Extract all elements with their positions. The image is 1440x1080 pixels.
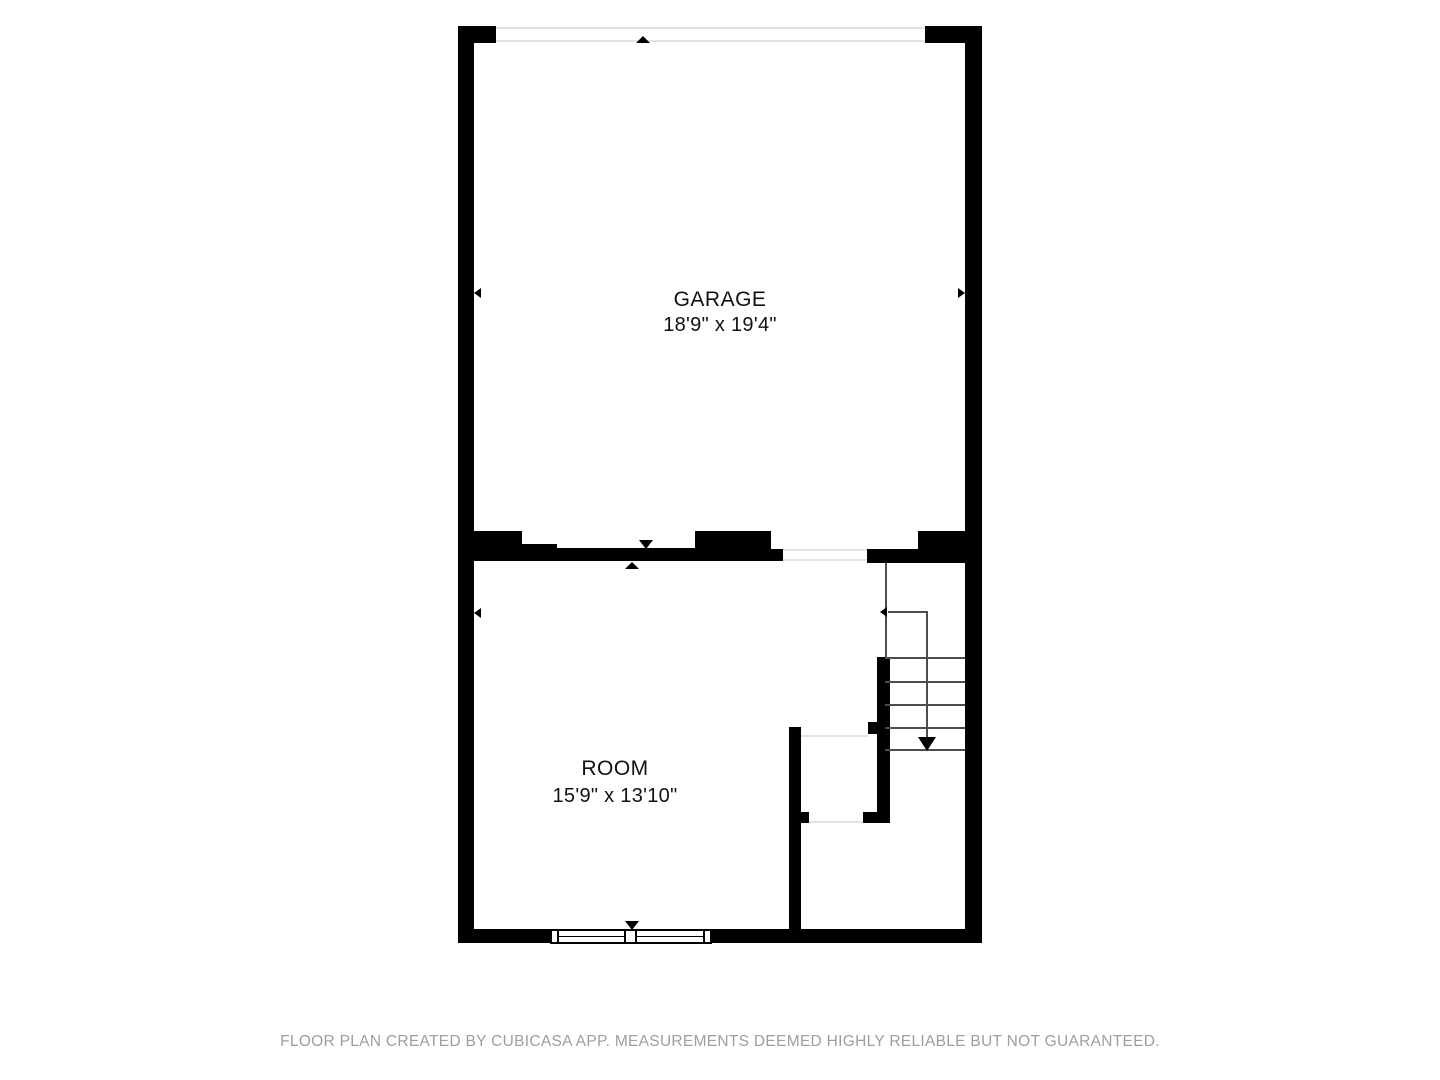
window-pane-line	[559, 936, 624, 938]
mid-wall-segment-b	[522, 544, 557, 561]
mid-wall-segment-g	[918, 531, 965, 549]
window-center-mullion	[624, 931, 626, 942]
top-wall-left-corner	[458, 26, 496, 43]
window-marker-icon	[625, 921, 639, 930]
window	[550, 929, 712, 944]
stair-direction-start-arrow-icon	[880, 607, 887, 617]
mid-wall-segment-e	[771, 549, 783, 561]
mid-wall-marker-down-icon	[639, 540, 653, 549]
mid-wall-segment-d	[695, 531, 771, 561]
footer-disclaimer: FLOOR PLAN CREATED BY CUBICASA APP. MEAS…	[0, 1033, 1440, 1051]
mid-wall-segment-a	[472, 531, 522, 561]
bottom-wall	[458, 929, 982, 943]
garage-left-wall-marker-icon	[474, 288, 481, 298]
garage-right-wall-marker-icon	[958, 288, 965, 298]
stair-direction-down-arrow-icon	[918, 737, 936, 751]
room-dimensions: 15'9" x 13'10"	[465, 784, 765, 808]
room-right-wall-nub	[801, 812, 809, 823]
garage-door-inner-line	[496, 40, 925, 42]
mid-opening-top-line	[783, 549, 867, 551]
stair-direction-line-horizontal	[888, 611, 928, 613]
garage-door-outer-line	[496, 27, 925, 29]
stair-tread	[885, 704, 965, 706]
stair-tread	[885, 681, 965, 683]
floor-plan-page: GARAGE 18'9" x 19'4" ROOM 15'9" x 13'10"…	[0, 0, 1440, 1080]
closet-bottom-opening-line	[809, 821, 863, 823]
stair-tread	[885, 657, 965, 659]
room-label: ROOM	[465, 757, 765, 781]
room-left-wall-marker-icon	[474, 608, 481, 618]
window-pane-line	[637, 936, 703, 938]
mid-opening-bottom-line	[783, 559, 867, 561]
stair-direction-line-vertical	[926, 611, 928, 739]
top-wall-right-corner	[925, 26, 982, 43]
room-right-wall	[789, 727, 801, 930]
right-outer-wall	[965, 26, 982, 943]
stair-closet-wall-foot	[863, 812, 877, 823]
garage-label: GARAGE	[570, 288, 870, 312]
stair-tread	[885, 727, 965, 729]
window-mullion	[703, 931, 705, 942]
stair-closet-wall-nub	[868, 722, 877, 734]
closet-top-opening-line	[801, 735, 868, 737]
garage-dimensions: 18'9" x 19'4"	[570, 313, 870, 337]
garage-door-marker-icon	[636, 36, 650, 43]
mid-wall-segment-c	[557, 548, 695, 561]
mid-wall-segment-f	[867, 549, 965, 563]
mid-wall-marker-up-icon	[625, 562, 639, 569]
